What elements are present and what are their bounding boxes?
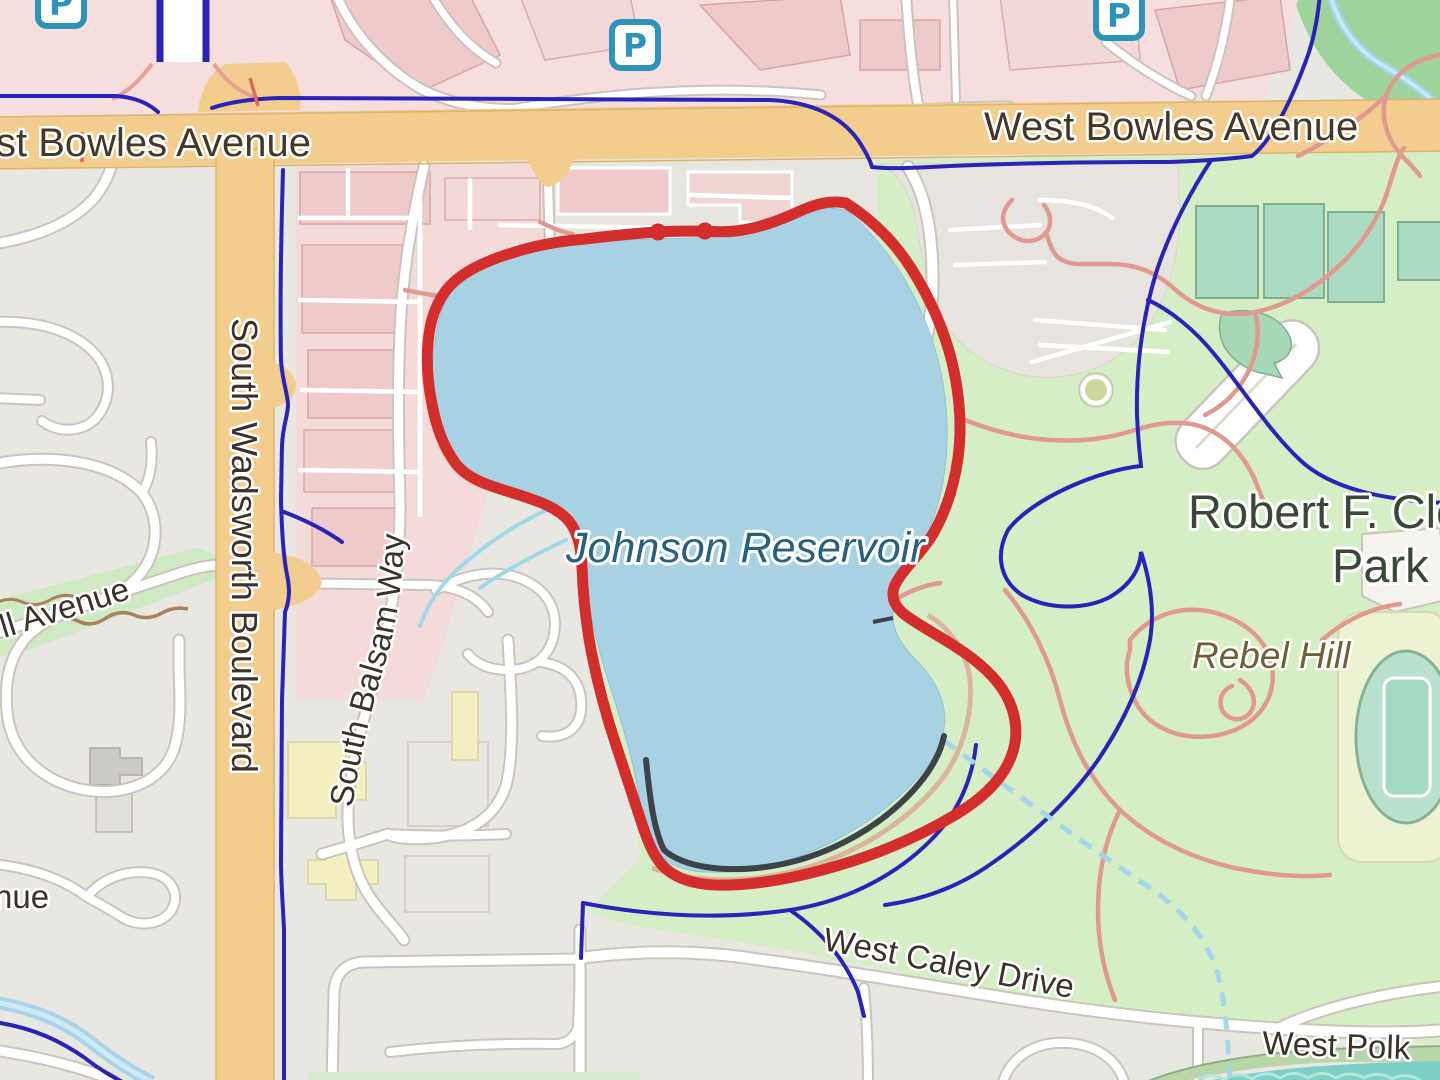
parking-aisle [690, 195, 790, 198]
building [308, 350, 400, 418]
tennis-court [1196, 206, 1258, 298]
cycleway [581, 903, 583, 958]
parking-icon: P [612, 22, 658, 68]
parking-aisle [955, 262, 1045, 265]
road [864, 988, 868, 1080]
road-label-polk: West Polk [1262, 1024, 1412, 1066]
road [953, 0, 956, 100]
road [578, 958, 580, 1028]
road-label-bowles-west: st Bowles Avenue [0, 121, 311, 165]
roundabout [1083, 377, 1109, 403]
place-label-park-line1: Robert F. Cle [1188, 485, 1440, 538]
place-label-park-line2: Park [1332, 539, 1429, 592]
track-infield [1384, 678, 1430, 796]
building [860, 20, 940, 70]
building [304, 430, 402, 492]
place-label-rebel-hill: Rebel Hill [1192, 635, 1352, 676]
map-viewport[interactable]: P P P st Bowles Avenue West Bowles Avenu… [0, 0, 1440, 1080]
road-label-bowles-east: West Bowles Avenue [984, 105, 1358, 149]
parking-aisle [500, 225, 660, 228]
building [302, 245, 402, 333]
parking-aisle [300, 300, 420, 302]
place-label-reservoir: Johnson Reservoir [565, 524, 926, 572]
parking-icon-letter: P [1107, 0, 1131, 35]
building [445, 178, 540, 220]
road [0, 398, 40, 400]
map-canvas[interactable]: P P P st Bowles Avenue West Bowles Avenu… [0, 0, 1440, 1080]
parking-icon-letter: P [49, 0, 73, 23]
parking-icon: P [38, 0, 84, 26]
tennis-court [1398, 222, 1440, 280]
building-yellow [452, 692, 478, 760]
building [558, 168, 670, 214]
road-label-wadsworth: South Wadsworth Boulevard [224, 318, 265, 773]
road [388, 834, 506, 836]
overpass [160, 0, 206, 62]
parking-icon-letter: P [623, 26, 647, 65]
road-label-avenue-fragment: nue [0, 878, 49, 915]
parking-aisle [300, 470, 415, 472]
route-end-dot [697, 223, 714, 240]
parking-icon: P [1096, 0, 1142, 38]
tennis-court [1328, 212, 1384, 302]
parking-aisle [302, 390, 418, 392]
green-sliver [308, 1072, 640, 1080]
route-start-dot [650, 224, 667, 241]
